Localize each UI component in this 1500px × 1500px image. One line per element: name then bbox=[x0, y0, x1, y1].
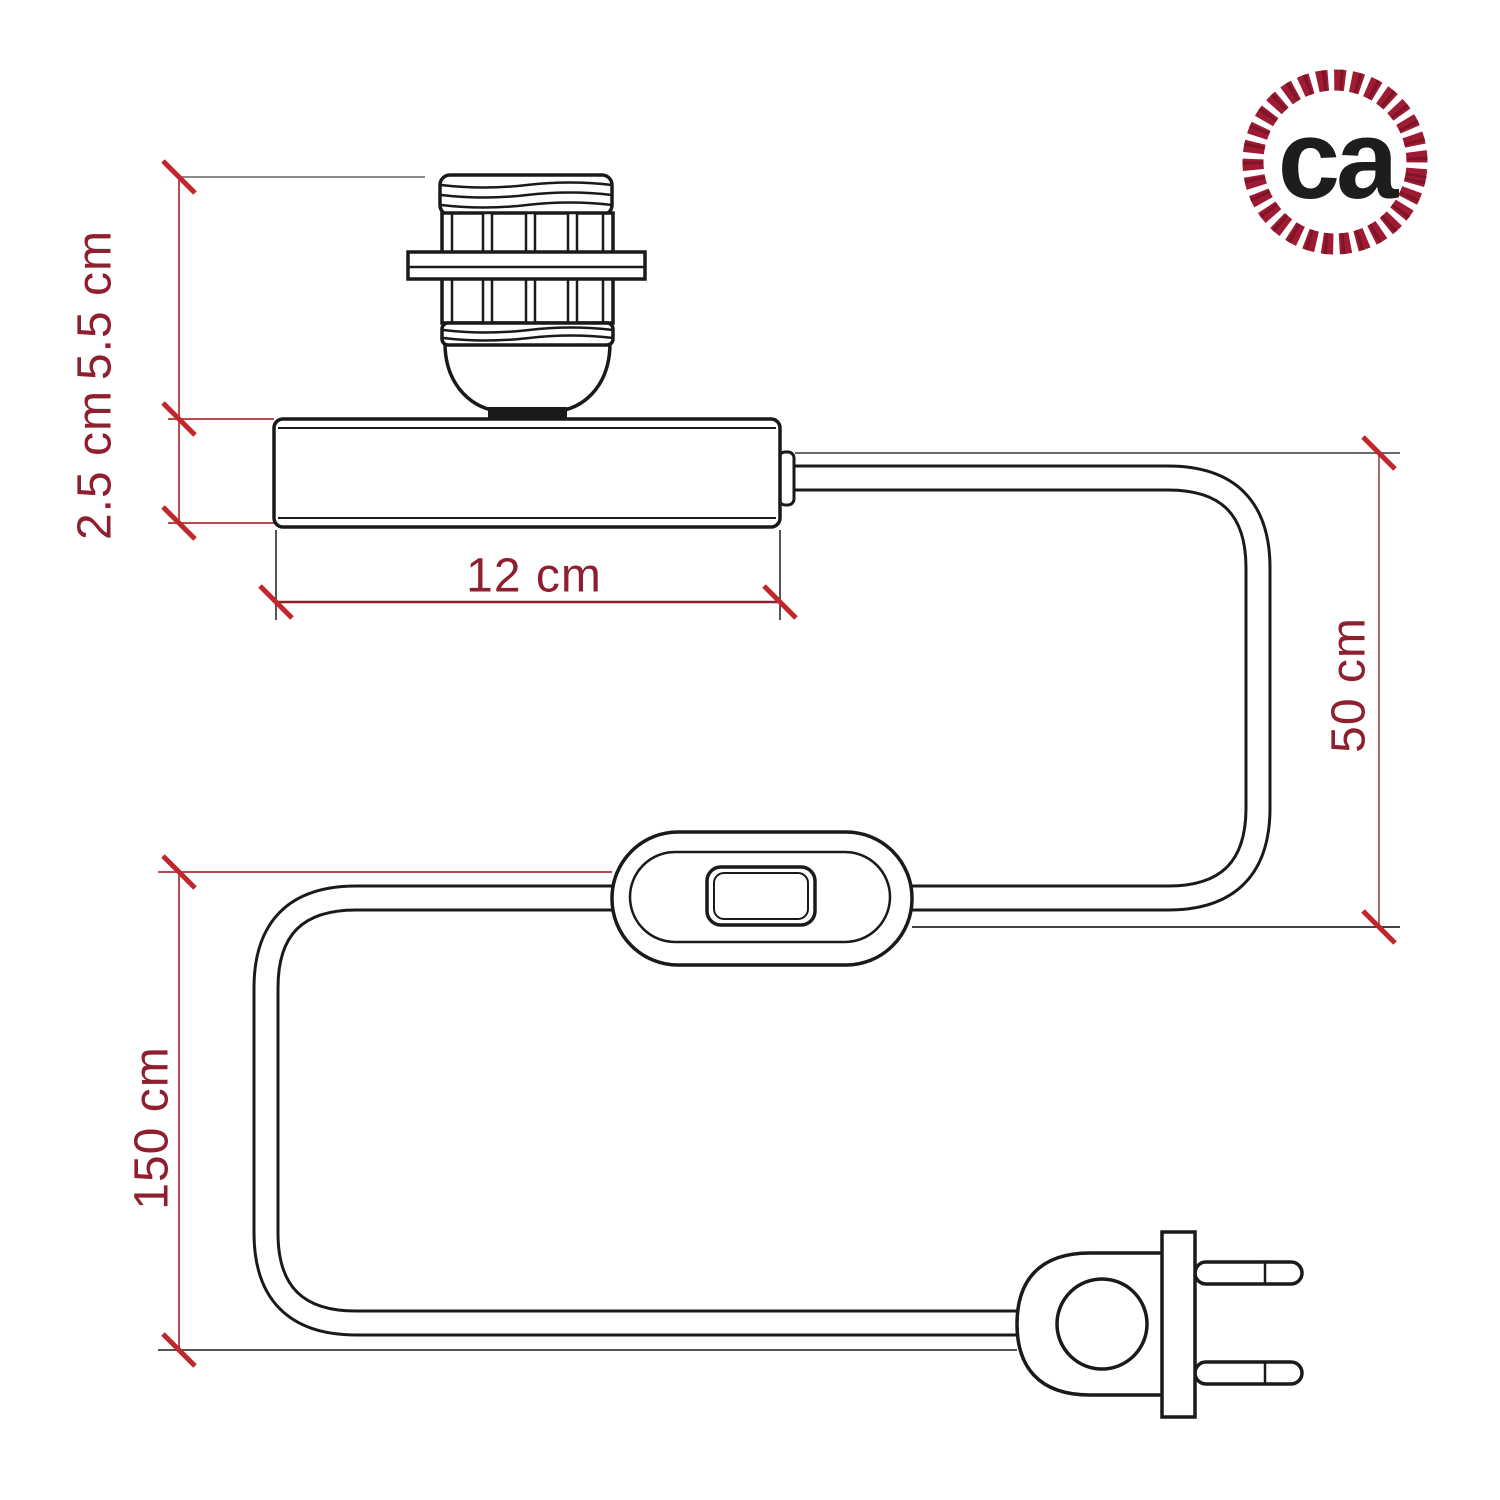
plug-face-plate bbox=[1162, 1232, 1195, 1417]
dimension-label-base-width: 12 cm bbox=[466, 549, 602, 604]
shade-ring bbox=[408, 252, 645, 279]
dimension-label-base-to-switch: 50 cm bbox=[1322, 617, 1377, 753]
socket-neck bbox=[488, 407, 567, 419]
dimension-label-base-height: 2.5 cm bbox=[68, 390, 123, 540]
plug-pin-bottom bbox=[1195, 1362, 1302, 1384]
power-plug-drawing bbox=[1017, 1232, 1302, 1417]
dimension-lines bbox=[158, 177, 1400, 1350]
dimension-label-cable-total: 150 cm bbox=[125, 1046, 180, 1209]
lamp-base-drawing bbox=[274, 419, 794, 527]
dimension-ticks bbox=[163, 161, 1395, 1366]
brand-logo-text: ca bbox=[1242, 68, 1430, 256]
base-body bbox=[274, 419, 780, 527]
plug-body-circle bbox=[1057, 1279, 1147, 1369]
plug-pin-top bbox=[1195, 1262, 1302, 1284]
product-dimension-diagram: 5.5 cm 2.5 cm 12 cm 50 cm 150 cm ca bbox=[0, 0, 1500, 1500]
inline-switch-drawing bbox=[612, 832, 912, 965]
socket-lower-threads bbox=[442, 323, 613, 345]
lamp-socket-drawing bbox=[408, 175, 645, 419]
switch-rocker-inner bbox=[714, 873, 808, 919]
dimension-label-socket-height: 5.5 cm bbox=[68, 230, 123, 380]
brand-logo: ca bbox=[1242, 68, 1430, 256]
socket-cup bbox=[445, 343, 610, 411]
